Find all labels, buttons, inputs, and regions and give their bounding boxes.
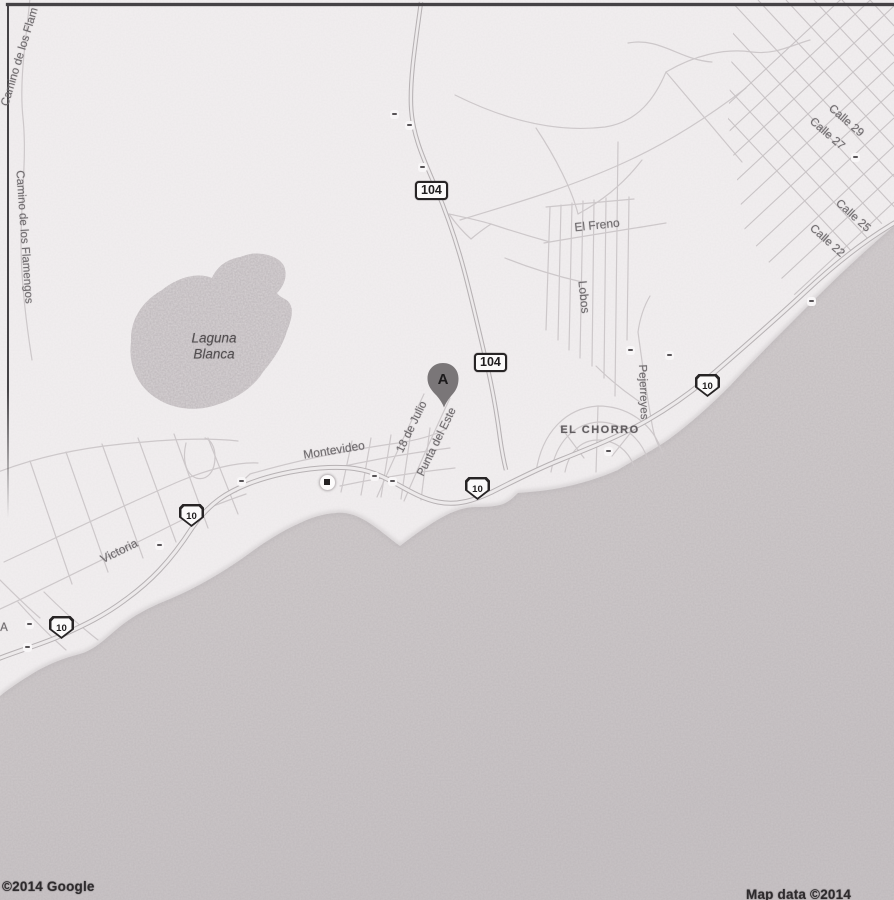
transit-stop-icon[interactable] (626, 346, 635, 355)
route-shield-104: 104 (415, 181, 448, 200)
locality-label-el-chorro: EL CHORRO (560, 424, 639, 436)
water-label-laguna-blanca: Laguna Blanca (191, 330, 236, 361)
transit-stop-icon[interactable] (604, 447, 613, 456)
transit-stop-icon[interactable] (390, 110, 399, 119)
transit-stop-icon[interactable] (155, 541, 164, 550)
attribution-right: Map data ©2014 Google (746, 887, 894, 900)
street-label-fragment: A (0, 622, 8, 634)
transit-stop-icon[interactable] (418, 163, 427, 172)
street-label-pejerreyes: Pejerreyes (636, 364, 650, 419)
transit-stop-icon[interactable] (807, 297, 816, 306)
transit-stop-icon[interactable] (370, 472, 379, 481)
map-canvas[interactable] (0, 0, 894, 900)
route-shield-104: 104 (474, 353, 507, 372)
transit-stop-icon[interactable] (25, 620, 34, 629)
transit-stop-icon[interactable] (237, 477, 246, 486)
transit-stop-icon[interactable] (23, 643, 32, 652)
transit-stop-icon[interactable] (388, 477, 397, 486)
water-label-line1: Laguna (191, 330, 236, 346)
transit-stop-icon[interactable] (665, 351, 674, 360)
transit-stop-icon[interactable] (851, 153, 860, 162)
transit-stop-icon[interactable] (405, 121, 414, 130)
water-label-line2: Blanca (191, 346, 236, 362)
attribution-left: ©2014 Google (2, 879, 95, 894)
scanned-map-page: Camino de los Flam Camino de los Flameng… (0, 0, 894, 900)
poi-marker[interactable] (319, 474, 336, 491)
scan-edge-top (6, 3, 894, 6)
